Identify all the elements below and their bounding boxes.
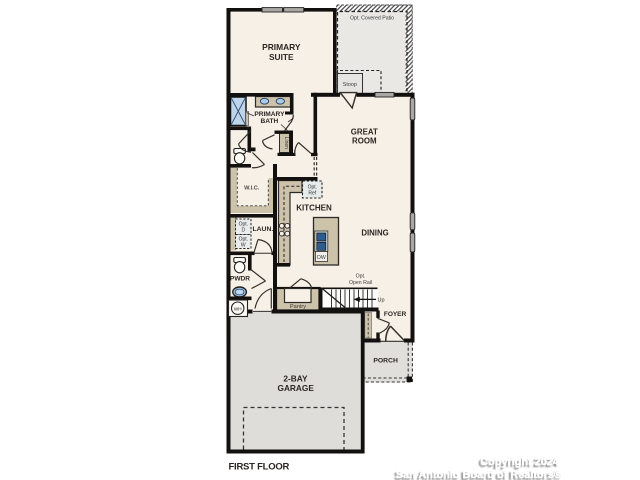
svg-text:Copyright 2024: Copyright 2024	[480, 456, 559, 468]
svg-text:ROOM: ROOM	[352, 137, 377, 146]
svg-text:Opt.: Opt.	[356, 274, 366, 280]
svg-text:Up: Up	[378, 298, 385, 304]
svg-text:PRIMARY: PRIMARY	[262, 42, 301, 52]
svg-text:DW: DW	[317, 255, 326, 261]
svg-text:Ref: Ref	[308, 191, 316, 197]
svg-text:PWDR: PWDR	[230, 276, 250, 283]
svg-text:Pantry: Pantry	[290, 304, 306, 310]
svg-text:Open Rail: Open Rail	[349, 280, 372, 286]
svg-text:D: D	[241, 228, 245, 234]
svg-text:DINING: DINING	[361, 229, 388, 238]
svg-text:PORCH: PORCH	[373, 357, 398, 364]
svg-text:W: W	[241, 243, 246, 249]
svg-text:Opt. Covered Patio: Opt. Covered Patio	[350, 15, 394, 21]
svg-text:FOYER: FOYER	[384, 311, 407, 318]
svg-text:WH: WH	[234, 306, 242, 311]
svg-text:KITCHEN: KITCHEN	[296, 204, 332, 213]
svg-text:Stoop: Stoop	[343, 82, 357, 88]
svg-text:San Antonio Board of Realtors®: San Antonio Board of Realtors®	[396, 469, 562, 480]
svg-text:BATH: BATH	[260, 118, 278, 125]
svg-text:GARAGE: GARAGE	[277, 383, 314, 393]
svg-text:W.I.C.: W.I.C.	[244, 186, 260, 192]
svg-text:Linen: Linen	[283, 137, 289, 149]
svg-text:LAUN.: LAUN.	[253, 226, 274, 233]
svg-text:SUITE: SUITE	[269, 52, 294, 62]
svg-text:PRIMARY: PRIMARY	[254, 111, 285, 118]
svg-text:GREAT: GREAT	[351, 128, 378, 137]
svg-text:FIRST FLOOR: FIRST FLOOR	[229, 461, 290, 472]
